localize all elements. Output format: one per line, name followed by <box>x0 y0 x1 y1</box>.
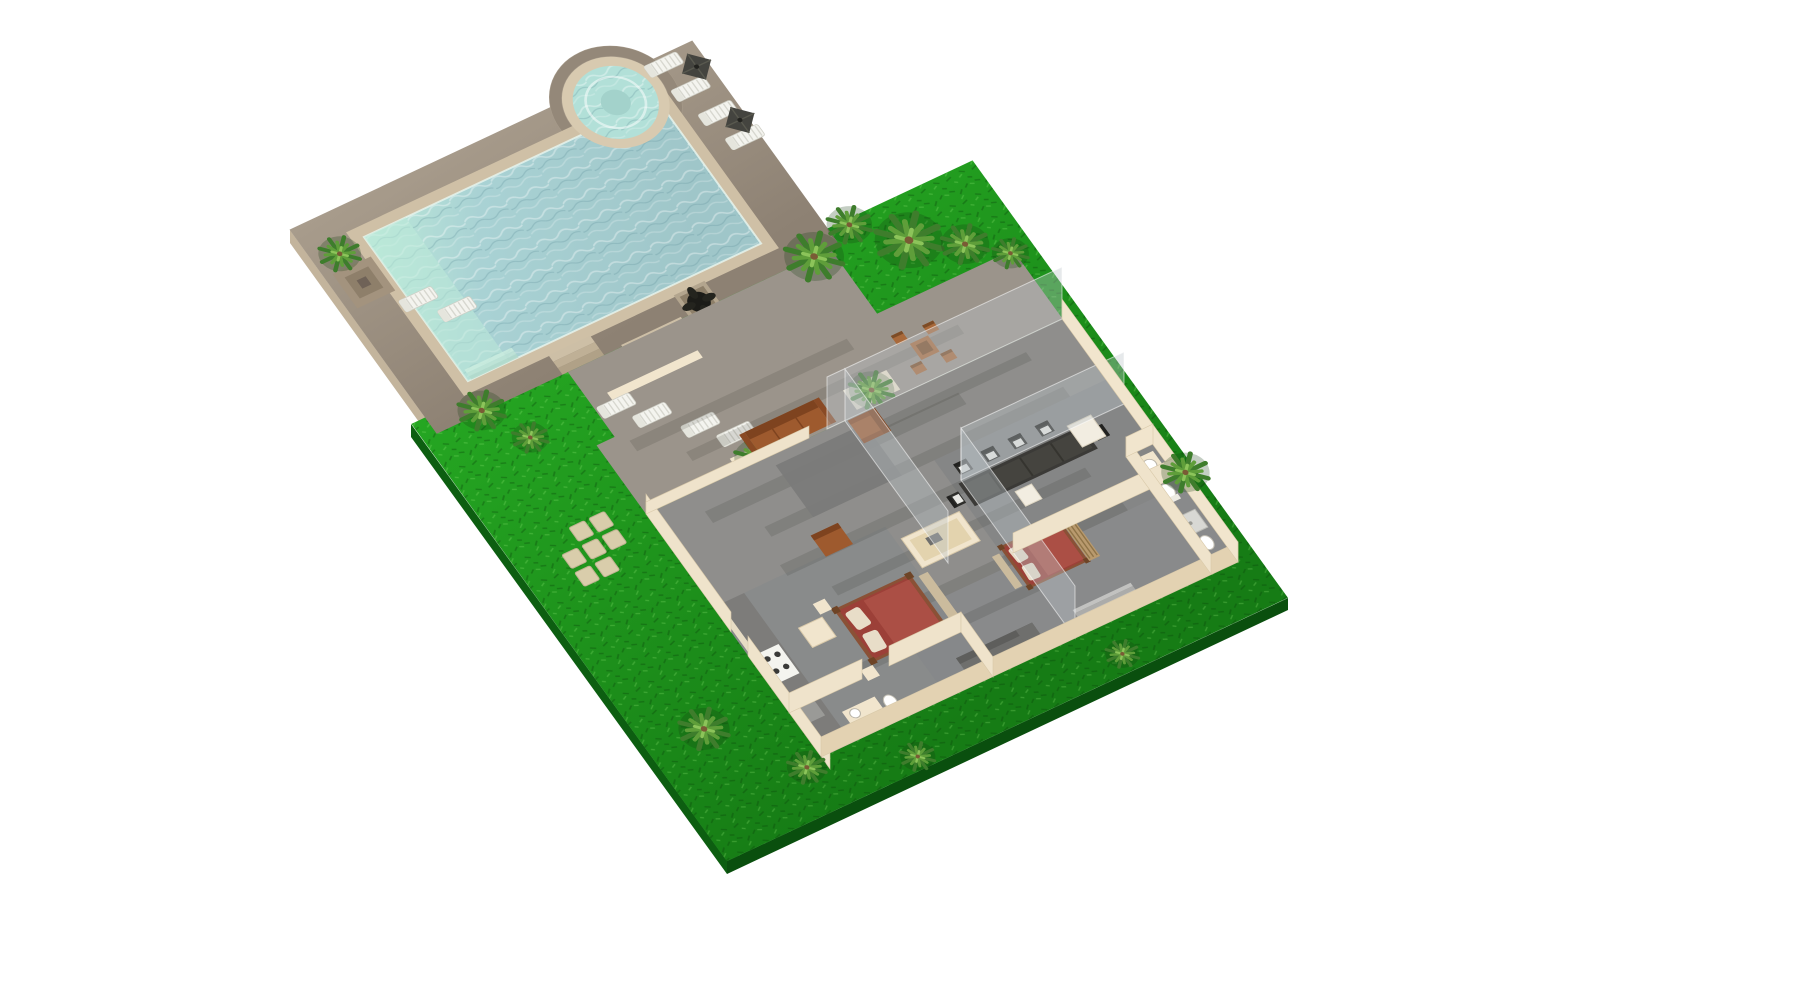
floorplan-canvas <box>0 0 1800 1000</box>
villa-floorplan-render <box>0 0 1800 1000</box>
